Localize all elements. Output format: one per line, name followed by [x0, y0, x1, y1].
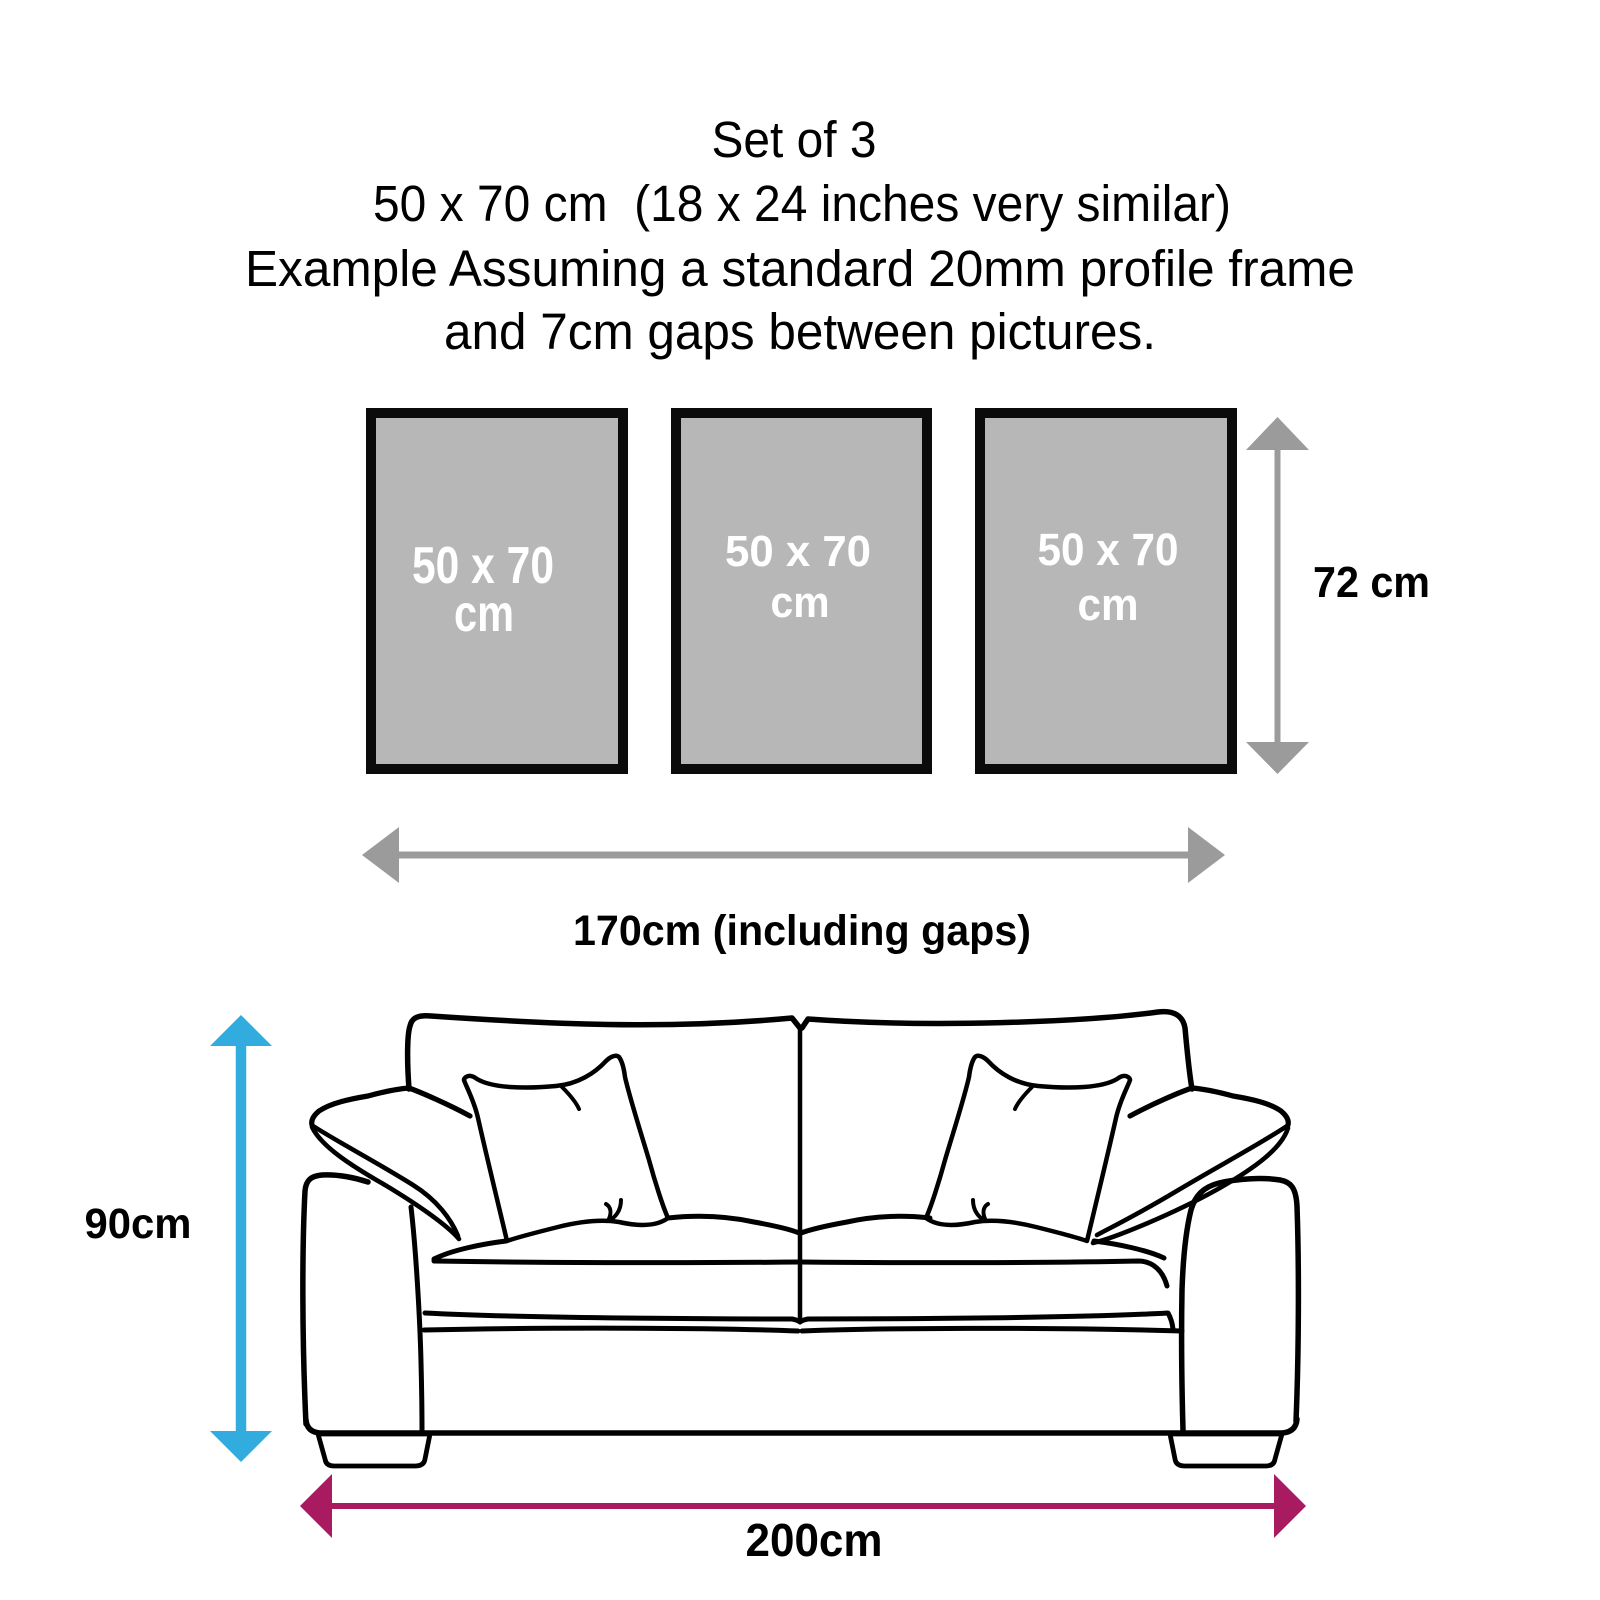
svg-text:cm: cm — [1078, 579, 1139, 630]
svg-text:Example Assuming a standard 20: Example Assuming a standard 20mm profile… — [245, 240, 1355, 297]
svg-text:cm: cm — [771, 578, 830, 627]
svg-text:170cm (including gaps): 170cm (including gaps) — [573, 907, 1031, 955]
svg-text:50 x 70 cm (18 x 24 inches ve: 50 x 70 cm (18 x 24 inches very similar) — [373, 175, 1231, 232]
svg-text:50 x 70: 50 x 70 — [725, 527, 871, 576]
svg-text:90cm: 90cm — [85, 1200, 192, 1248]
svg-text:Set of 3: Set of 3 — [712, 111, 877, 168]
svg-text:and 7cm gaps between pictures.: and 7cm gaps between pictures. — [444, 303, 1156, 360]
svg-text:72 cm: 72 cm — [1313, 558, 1430, 607]
svg-text:50 x 70: 50 x 70 — [1038, 524, 1179, 575]
svg-text:cm: cm — [454, 585, 514, 643]
svg-text:200cm: 200cm — [746, 1514, 883, 1566]
